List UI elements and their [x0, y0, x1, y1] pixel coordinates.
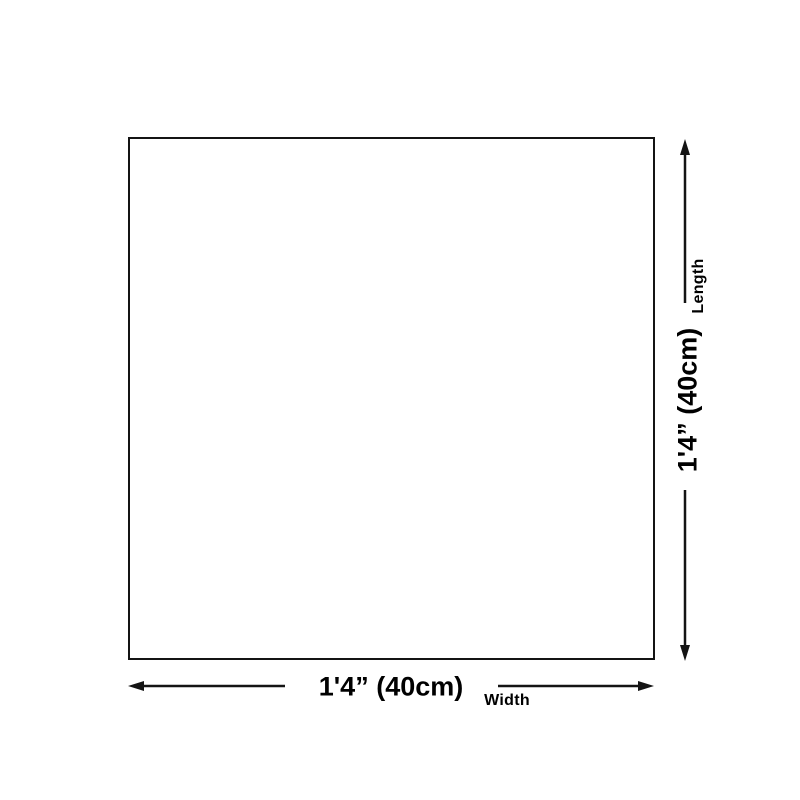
length-axis-label: Length — [690, 258, 708, 313]
dimension-diagram: 1'4” (40cm) Width 1'4” (40cm) Length — [0, 0, 800, 800]
width-arrow-left-head-icon — [128, 681, 144, 691]
length-value-label: 1'4” (40cm) — [673, 328, 704, 473]
width-arrow-right-head-icon — [638, 681, 654, 691]
width-axis-label: Width — [484, 692, 530, 710]
length-arrow-up-head-icon — [680, 139, 690, 155]
width-value-label: 1'4” (40cm) — [319, 672, 464, 703]
length-arrow-down-head-icon — [680, 645, 690, 661]
product-outline-box — [128, 137, 655, 660]
